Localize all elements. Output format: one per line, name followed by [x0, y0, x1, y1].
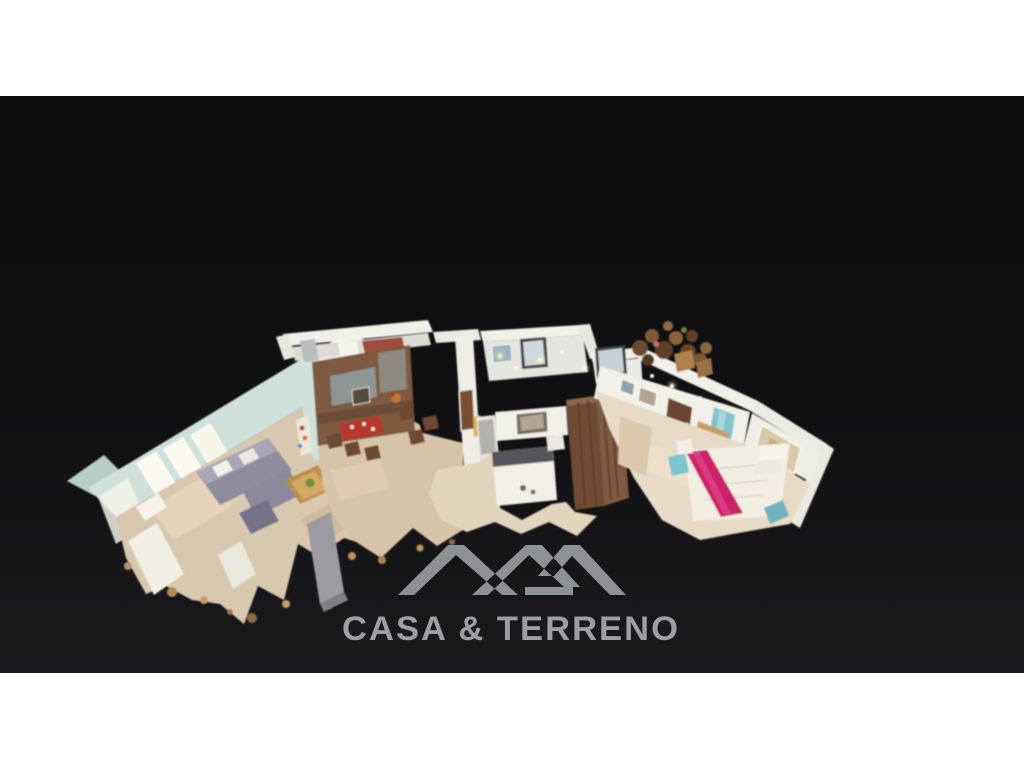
bed-white: [492, 446, 557, 506]
screenshot-stage: CASA & TERRENO: [0, 0, 1024, 768]
letterbox-top: [0, 0, 1024, 96]
scene-canvas: CASA & TERRENO: [0, 0, 1024, 768]
letterbox-bottom: [0, 673, 1024, 768]
door: [459, 389, 475, 431]
brand-text: CASA & TERRENO: [342, 610, 680, 648]
